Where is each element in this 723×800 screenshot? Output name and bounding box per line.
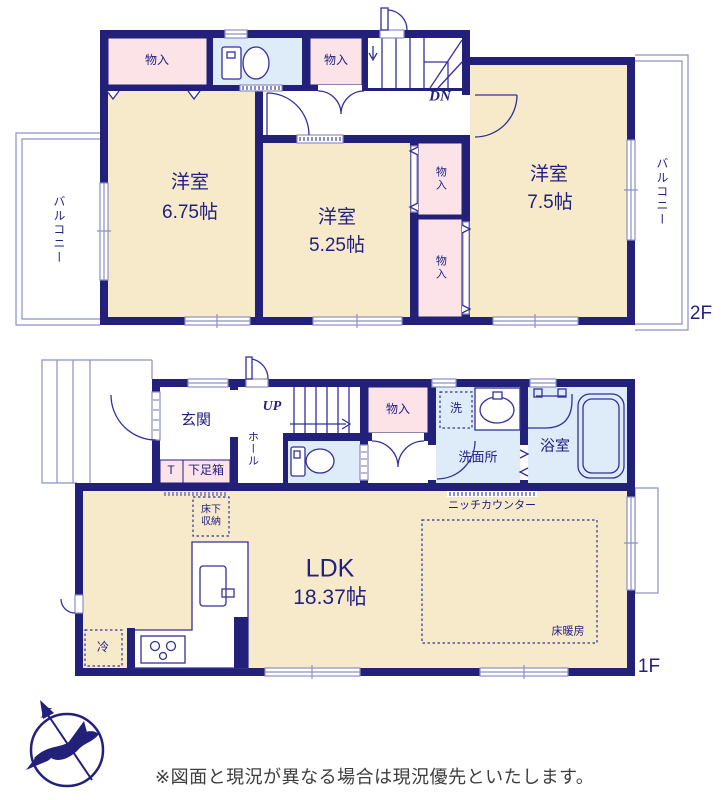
shoe-box-label: 下足箱 (188, 464, 224, 478)
floor-plan-drawing (0, 0, 723, 800)
niche-counter-strip (447, 491, 537, 497)
ldk-name-label: LDK (306, 555, 355, 584)
entrance-door-1f (111, 392, 160, 440)
closet-label: 物入 (324, 54, 348, 68)
floor-2f-plan (16, 8, 688, 330)
room-name-label: 洋室 (171, 172, 209, 194)
disclaimer-text: ※図面と現況が異なる場合は現況優先といたします。 (155, 763, 594, 789)
toilet-t-label: T (167, 464, 174, 478)
toilet-door-2f (240, 85, 282, 91)
floor-plan-page: 物入 物入 DN 洋室 6.75帖 洋室 5.25帖 洋室 7.5帖 物入 物入… (0, 0, 723, 800)
sink-icon-washroom (475, 388, 520, 430)
window-1f-left-small (61, 595, 83, 613)
floor-2f-label: 2F (690, 303, 712, 325)
washer-label: 洗 (450, 402, 462, 416)
ldk-size-label: 18.37帖 (293, 586, 367, 610)
compass-north-label: N (41, 705, 52, 722)
closet-label: 物入 (434, 255, 447, 281)
hall-label: ホール (246, 431, 259, 467)
stairs-dn-label: DN (429, 88, 451, 105)
window-1f-top-bath (530, 379, 556, 387)
bathroom-label: 浴室 (540, 437, 570, 454)
room-size-label: 5.25帖 (309, 235, 365, 257)
bathroom-door (520, 445, 528, 480)
toilet-door-1f (360, 445, 368, 480)
toilet-icon-1f (291, 447, 334, 476)
stairs-up-label: UP (263, 399, 282, 415)
room-2f-525 (263, 143, 410, 317)
floor-heating-label: 床暖房 (552, 626, 585, 639)
washroom-label: 洗面所 (458, 451, 497, 466)
closet-label: 物入 (434, 166, 447, 192)
entrance-label: 玄関 (181, 411, 211, 428)
room-name-label: 洋室 (530, 164, 568, 186)
porch-1f (42, 360, 152, 483)
underfloor-storage-label: 床下 収納 (201, 505, 221, 528)
window-2f-top-toilet (225, 30, 247, 38)
opening-2f-525-top (297, 135, 343, 143)
niche-counter-label: ニッチカウンター (448, 500, 536, 513)
closet-label: 物入 (145, 54, 169, 68)
window-1f-top-entrance (188, 379, 228, 387)
window-1f-top-washroom (432, 379, 456, 387)
closet-label: 物入 (386, 403, 410, 417)
room-name-label: 洋室 (318, 207, 356, 229)
refrigerator-label: 冷 (97, 641, 109, 655)
door-1f-hall-exterior (246, 357, 268, 387)
room-size-label: 7.5帖 (527, 192, 572, 214)
entrance-hall-opening (230, 390, 238, 437)
floor-1f-label: 1F (638, 656, 660, 678)
balcony-label: バルコニー (654, 157, 668, 227)
terrace-1f (635, 488, 658, 593)
room-size-label: 6.75帖 (162, 202, 218, 224)
stove-icon (141, 636, 185, 663)
compass-icon (26, 700, 103, 786)
door-2f-stairs-exterior (380, 8, 407, 38)
room-2f-75 (470, 65, 627, 317)
balcony-label: バルコニー (51, 195, 65, 265)
